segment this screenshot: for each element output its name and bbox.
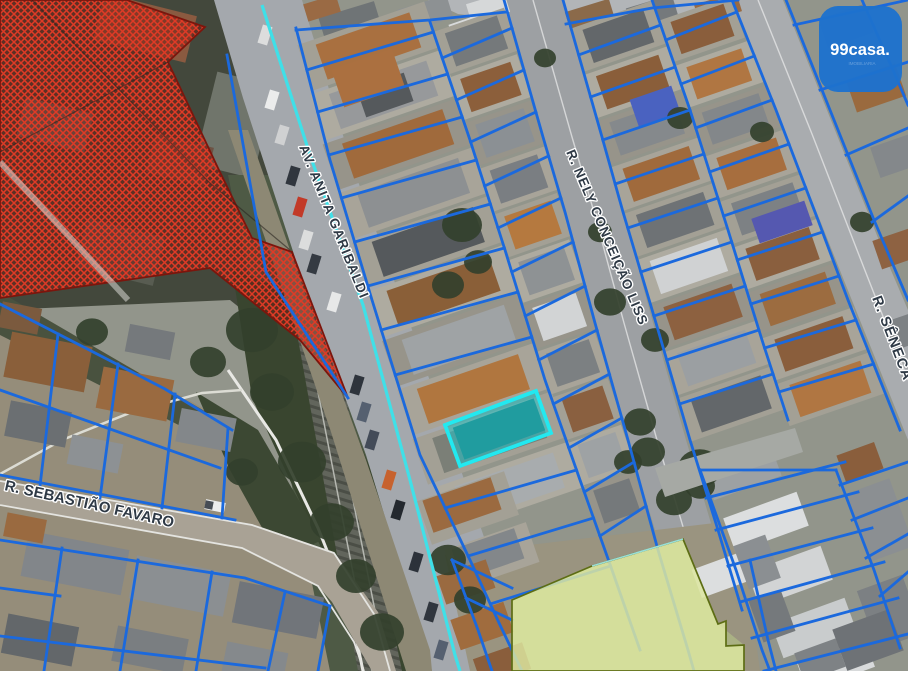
svg-text:IMOBILIARIA: IMOBILIARIA (848, 61, 875, 66)
svg-text:99casa.: 99casa. (830, 41, 890, 59)
